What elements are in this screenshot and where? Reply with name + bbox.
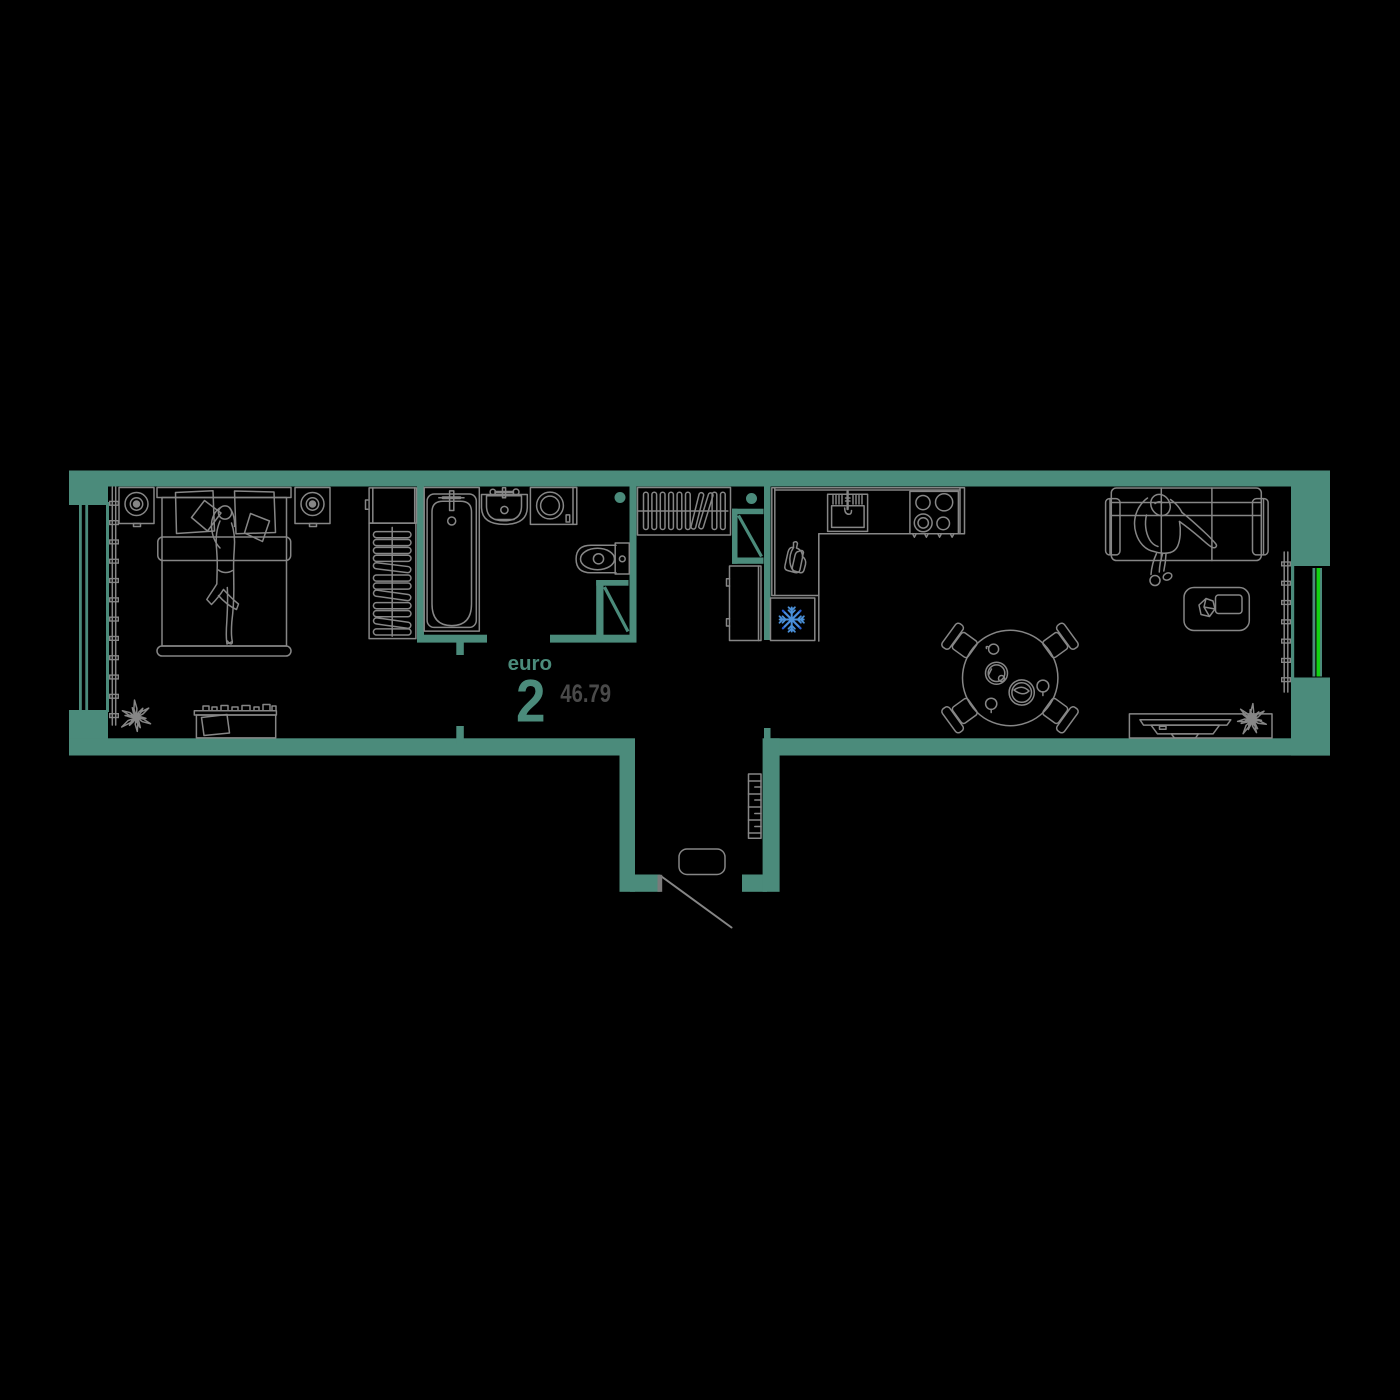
svg-text:46.79: 46.79	[560, 681, 611, 708]
svg-text:2: 2	[516, 667, 546, 734]
